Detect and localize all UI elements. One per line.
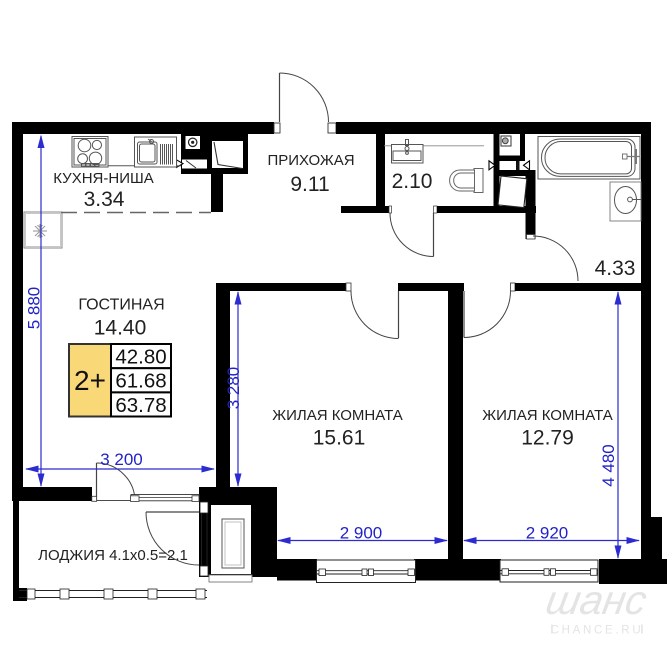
svg-text:2+: 2+	[74, 365, 106, 396]
svg-text:ЖИЛАЯ КОМНАТА: ЖИЛАЯ КОМНАТА	[482, 407, 613, 424]
svg-text:5 880: 5 880	[25, 287, 44, 330]
svg-text:ПРИХОЖАЯ: ПРИХОЖАЯ	[267, 152, 354, 169]
svg-text:3.34: 3.34	[84, 188, 125, 211]
svg-text:9.11: 9.11	[290, 173, 329, 196]
svg-text:2.10: 2.10	[392, 170, 433, 193]
svg-text:CHANCE.RU: CHANCE.RU	[551, 625, 644, 637]
svg-text:ЖИЛАЯ КОМНАТА: ЖИЛАЯ КОМНАТА	[272, 407, 403, 424]
svg-text:15.61: 15.61	[313, 427, 366, 450]
svg-text:2 900: 2 900	[340, 524, 383, 543]
svg-text:42.80: 42.80	[115, 346, 166, 369]
svg-text:14.40: 14.40	[94, 317, 147, 340]
svg-text:3 200: 3 200	[100, 450, 143, 469]
svg-text:3 280: 3 280	[224, 367, 243, 410]
svg-text:12.79: 12.79	[521, 427, 574, 450]
svg-text:63.78: 63.78	[115, 394, 166, 417]
svg-text:2 920: 2 920	[526, 524, 569, 543]
svg-text:4.33: 4.33	[595, 257, 636, 280]
svg-text:61.68: 61.68	[115, 370, 166, 393]
svg-text:КУХНЯ-НИША: КУХНЯ-НИША	[53, 170, 153, 187]
svg-text:ЛОДЖИЯ 4.1х0.5=2.1: ЛОДЖИЯ 4.1х0.5=2.1	[38, 547, 188, 564]
svg-text:ГОСТИНАЯ: ГОСТИНАЯ	[78, 297, 164, 314]
svg-text:шанс: шанс	[542, 577, 650, 623]
svg-text:4 480: 4 480	[599, 444, 618, 487]
